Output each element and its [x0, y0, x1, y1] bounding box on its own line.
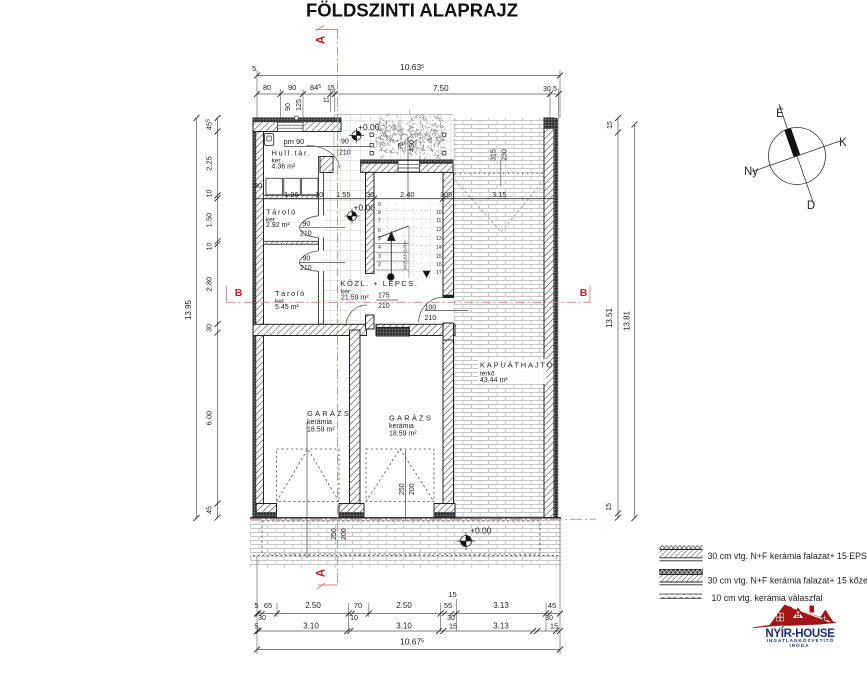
- svg-text:8: 8: [378, 210, 381, 216]
- svg-text:A: A: [316, 36, 328, 44]
- svg-text:7: 7: [378, 218, 381, 224]
- svg-text:10: 10: [207, 243, 214, 251]
- svg-text:12: 12: [436, 227, 442, 233]
- svg-text:KAPUÁTHAJTÓ: KAPUÁTHAJTÓ: [480, 361, 554, 370]
- svg-text:10.635: 10.635: [400, 62, 424, 72]
- svg-text:80: 80: [263, 83, 271, 92]
- svg-text:GARÁZS: GARÁZS: [307, 409, 351, 418]
- svg-text:5: 5: [553, 86, 557, 93]
- svg-text:14: 14: [436, 245, 442, 251]
- svg-text:11: 11: [436, 218, 441, 224]
- svg-text:9x15,63=2,86m: 9x15,63=2,86m: [403, 240, 408, 269]
- svg-text:55: 55: [444, 601, 452, 610]
- svg-text:30: 30: [254, 181, 262, 190]
- svg-text:5: 5: [254, 622, 258, 631]
- svg-text:30: 30: [543, 86, 551, 93]
- svg-text:KÖZL. + LÉPCS.: KÖZL. + LÉPCS.: [341, 279, 419, 288]
- svg-text:13.81: 13.81: [623, 310, 632, 331]
- svg-text:+0.00: +0.00: [358, 122, 380, 132]
- svg-text:6: 6: [378, 228, 381, 234]
- svg-text:70: 70: [354, 601, 362, 610]
- svg-text:2.40: 2.40: [400, 190, 415, 199]
- svg-text:B: B: [235, 287, 243, 299]
- svg-text:B: B: [580, 287, 588, 299]
- svg-text:Tároló: Tároló: [266, 208, 297, 217]
- svg-text:175: 175: [378, 293, 390, 300]
- svg-text:315: 315: [491, 149, 498, 161]
- svg-text:3: 3: [378, 254, 381, 260]
- svg-text:10.675: 10.675: [400, 637, 424, 647]
- svg-text:13.51: 13.51: [605, 307, 614, 328]
- svg-text:Hull.tár.: Hull.tár.: [272, 149, 312, 158]
- svg-text:7.50: 7.50: [433, 84, 449, 93]
- svg-text:FÖLDSZINTI ALAPRAJZ: FÖLDSZINTI ALAPRAJZ: [306, 0, 518, 21]
- svg-text:5.45 m²: 5.45 m²: [275, 304, 299, 311]
- svg-text:15: 15: [606, 503, 613, 511]
- svg-text:13: 13: [436, 236, 442, 242]
- svg-text:4: 4: [378, 245, 381, 251]
- svg-text:15: 15: [448, 590, 456, 599]
- svg-text:15: 15: [550, 622, 558, 631]
- svg-text:5: 5: [378, 236, 381, 242]
- svg-text:45: 45: [207, 506, 214, 514]
- svg-text:4.36 m²: 4.36 m²: [272, 164, 296, 171]
- svg-text:30: 30: [366, 190, 374, 199]
- svg-text:Ny: Ny: [744, 166, 758, 178]
- svg-text:5: 5: [252, 64, 256, 73]
- svg-text:15: 15: [327, 85, 335, 92]
- svg-text:45: 45: [548, 601, 556, 610]
- svg-text:65: 65: [264, 601, 272, 610]
- svg-text:2.92 m²: 2.92 m²: [266, 222, 290, 229]
- svg-text:16: 16: [436, 262, 442, 268]
- svg-text:3.10: 3.10: [303, 622, 319, 631]
- svg-text:18.59 m²: 18.59 m²: [389, 431, 417, 438]
- svg-text:11: 11: [323, 97, 330, 104]
- svg-text:2.50: 2.50: [396, 601, 412, 610]
- svg-text:3.15: 3.15: [492, 190, 507, 199]
- svg-text:1.50: 1.50: [205, 213, 214, 228]
- svg-text:2.25: 2.25: [205, 156, 214, 171]
- svg-text:Tároló: Tároló: [275, 289, 306, 298]
- svg-text:450: 450: [409, 140, 416, 152]
- svg-text:230: 230: [502, 149, 509, 161]
- svg-text:210: 210: [300, 231, 312, 238]
- svg-text:1.96: 1.96: [284, 190, 299, 199]
- svg-text:INGATLANKÖZVETÍTŐ: INGATLANKÖZVETÍTŐ: [767, 636, 835, 643]
- svg-text:D: D: [807, 200, 815, 212]
- svg-text:15: 15: [449, 622, 457, 631]
- svg-text:10: 10: [315, 190, 323, 199]
- svg-text:3.10: 3.10: [396, 622, 412, 631]
- svg-text:10 cm vtg. kerámia válaszfal: 10 cm vtg. kerámia válaszfal: [712, 593, 823, 603]
- svg-text:1.55: 1.55: [336, 190, 351, 199]
- svg-text:2.50: 2.50: [305, 601, 321, 610]
- svg-text:210: 210: [425, 315, 437, 322]
- svg-text:30: 30: [258, 615, 266, 622]
- svg-text:pm 90: pm 90: [284, 137, 305, 146]
- svg-text:43.44 m²: 43.44 m²: [480, 377, 508, 384]
- svg-text:210: 210: [339, 150, 351, 157]
- svg-text:13.95: 13.95: [184, 299, 193, 320]
- svg-text:30 cm vtg. N+F kerámia falazat: 30 cm vtg. N+F kerámia falazat+ 15 EPS h…: [708, 551, 867, 561]
- svg-text:3.13: 3.13: [493, 622, 509, 631]
- svg-text:200: 200: [409, 483, 416, 495]
- svg-text:3.13: 3.13: [493, 601, 509, 610]
- svg-text:15: 15: [436, 254, 442, 260]
- svg-text:K: K: [839, 137, 847, 149]
- svg-text:IRODA: IRODA: [789, 643, 809, 648]
- svg-text:kerámia: kerámia: [389, 423, 414, 430]
- svg-text:30 cm vtg. N+F kerámia falazat: 30 cm vtg. N+F kerámia falazat+ 15 kőzet…: [708, 576, 867, 586]
- svg-text:90: 90: [288, 83, 296, 92]
- svg-text:21.59 m²: 21.59 m²: [341, 295, 369, 302]
- svg-text:250: 250: [399, 483, 406, 495]
- svg-text:90: 90: [303, 221, 311, 228]
- svg-text:200: 200: [341, 528, 348, 540]
- svg-text:10: 10: [436, 210, 442, 216]
- svg-text:90: 90: [303, 256, 311, 263]
- svg-text:18.59 m²: 18.59 m²: [307, 427, 335, 434]
- svg-text:17: 17: [436, 270, 442, 276]
- svg-text:kerámia: kerámia: [307, 419, 332, 426]
- svg-text:É: É: [776, 107, 784, 120]
- svg-text:250: 250: [331, 528, 338, 540]
- svg-text:30: 30: [207, 324, 214, 332]
- svg-text:A: A: [316, 569, 328, 577]
- svg-text:90: 90: [285, 103, 292, 111]
- svg-text:6.00: 6.00: [205, 411, 214, 426]
- svg-text:125: 125: [296, 99, 303, 111]
- svg-text:75: 75: [398, 142, 405, 150]
- svg-text:+0.00: +0.00: [470, 526, 492, 536]
- svg-text:10: 10: [350, 615, 358, 622]
- svg-text:90: 90: [341, 139, 349, 146]
- svg-text:210: 210: [300, 265, 312, 272]
- svg-text:15: 15: [607, 121, 614, 129]
- svg-text:210: 210: [378, 303, 390, 310]
- svg-text:10: 10: [207, 190, 214, 198]
- svg-text:GARÁZS: GARÁZS: [389, 414, 433, 423]
- svg-text:2.80: 2.80: [205, 277, 214, 292]
- svg-text:5: 5: [254, 601, 258, 610]
- svg-text:5: 5: [448, 190, 452, 199]
- svg-text:9: 9: [378, 202, 381, 208]
- svg-text:2: 2: [378, 262, 381, 268]
